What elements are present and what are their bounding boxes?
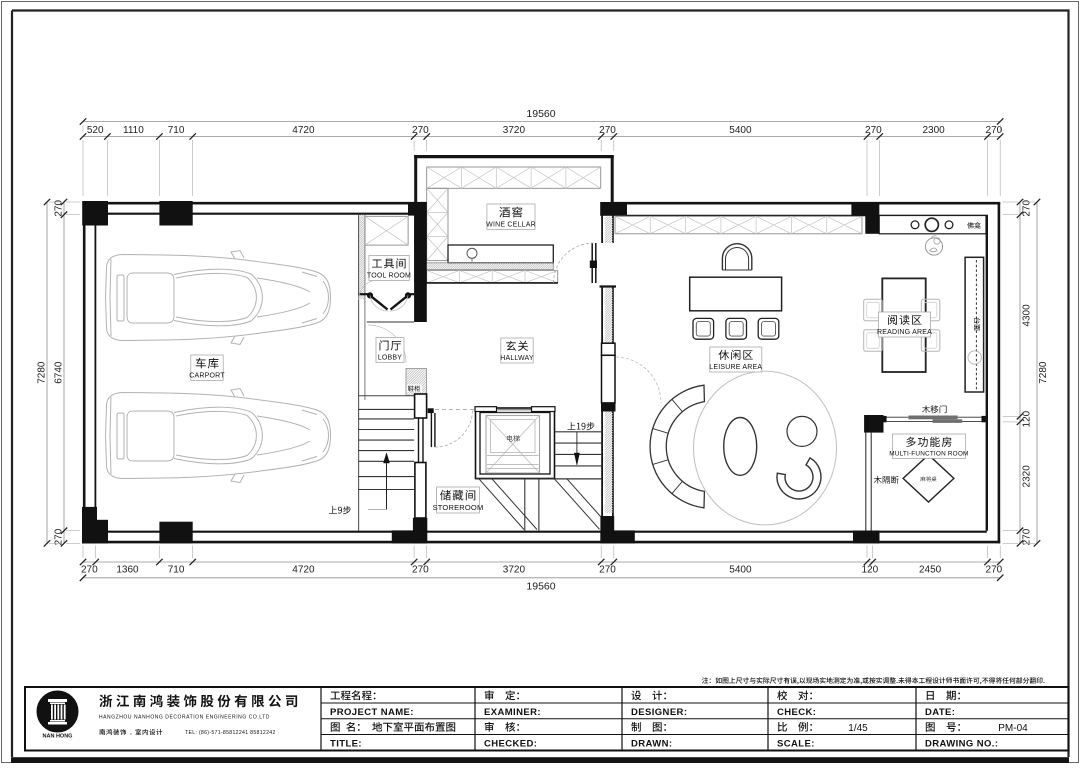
svg-text:710: 710: [168, 565, 185, 576]
svg-text:19560: 19560: [526, 108, 555, 120]
svg-text:READING AREA: READING AREA: [877, 329, 932, 336]
svg-text:270: 270: [865, 125, 882, 136]
svg-text:7280: 7280: [1038, 361, 1049, 384]
svg-text:2450: 2450: [919, 565, 942, 576]
svg-text:LEISURE AREA: LEISURE AREA: [709, 364, 762, 371]
svg-text:520: 520: [87, 125, 104, 136]
svg-text:7280: 7280: [37, 361, 48, 384]
svg-text:270: 270: [81, 565, 98, 576]
svg-text:1110: 1110: [123, 125, 144, 136]
svg-text:DRAWING NO.:: DRAWING NO.:: [925, 739, 998, 750]
svg-text:270: 270: [53, 528, 64, 545]
svg-text:HALLWAY: HALLWAY: [500, 355, 534, 362]
svg-text:DATE:: DATE:: [925, 707, 955, 718]
svg-text:HANGZHOU NANHONG DECORATION EN: HANGZHOU NANHONG DECORATION ENGINEERING …: [99, 715, 270, 721]
svg-text:NAN HONG: NAN HONG: [43, 734, 73, 740]
svg-text:3720: 3720: [503, 125, 526, 136]
svg-text:CHECK:: CHECK:: [777, 707, 816, 718]
svg-text:DRAWN:: DRAWN:: [631, 739, 672, 750]
svg-text:TOOL ROOM: TOOL ROOM: [367, 273, 411, 280]
svg-text:TEL: (86)-571-85812241 85812: TEL: (86)-571-85812241 85812242: [185, 730, 276, 736]
svg-text:LOBBY: LOBBY: [378, 355, 402, 362]
svg-text:PM-04: PM-04: [998, 723, 1028, 734]
svg-text:19560: 19560: [526, 581, 555, 593]
svg-text:2320: 2320: [1021, 465, 1032, 488]
svg-text:CHECKED:: CHECKED:: [484, 739, 537, 750]
svg-text:4300: 4300: [1022, 304, 1033, 327]
svg-text:MULTI-FUNCTION ROOM: MULTI-FUNCTION ROOM: [889, 450, 968, 457]
svg-text:PROJECT NAME:: PROJECT NAME:: [330, 707, 414, 718]
svg-text:6740: 6740: [54, 361, 65, 384]
svg-text:DESIGNER:: DESIGNER:: [631, 707, 687, 718]
svg-text:270: 270: [412, 565, 429, 576]
svg-text:270: 270: [1021, 528, 1032, 545]
svg-text:270: 270: [599, 565, 616, 576]
svg-text:120: 120: [861, 565, 878, 576]
svg-text:710: 710: [168, 125, 185, 136]
svg-text:5400: 5400: [729, 565, 752, 576]
svg-text:EXAMINER:: EXAMINER:: [484, 707, 541, 718]
svg-text:1360: 1360: [116, 565, 139, 576]
svg-text:CARPORT: CARPORT: [189, 373, 225, 380]
svg-text:SCALE:: SCALE:: [777, 739, 815, 750]
svg-text:3720: 3720: [503, 565, 526, 576]
svg-text:4720: 4720: [292, 125, 315, 136]
svg-text:270: 270: [986, 565, 1003, 576]
svg-text:TITLE:: TITLE:: [330, 739, 362, 750]
svg-text:270: 270: [599, 125, 616, 136]
svg-text:4720: 4720: [292, 565, 315, 576]
svg-text:270: 270: [412, 125, 429, 136]
svg-text:WINE CELLAR: WINE CELLAR: [486, 222, 536, 229]
svg-text:120: 120: [1021, 410, 1032, 427]
svg-text:.: .: [130, 730, 132, 737]
svg-text:1/45: 1/45: [848, 723, 868, 734]
svg-text:STOREROOM: STOREROOM: [433, 503, 484, 512]
svg-text:5400: 5400: [729, 125, 752, 136]
svg-text:2300: 2300: [922, 125, 945, 136]
